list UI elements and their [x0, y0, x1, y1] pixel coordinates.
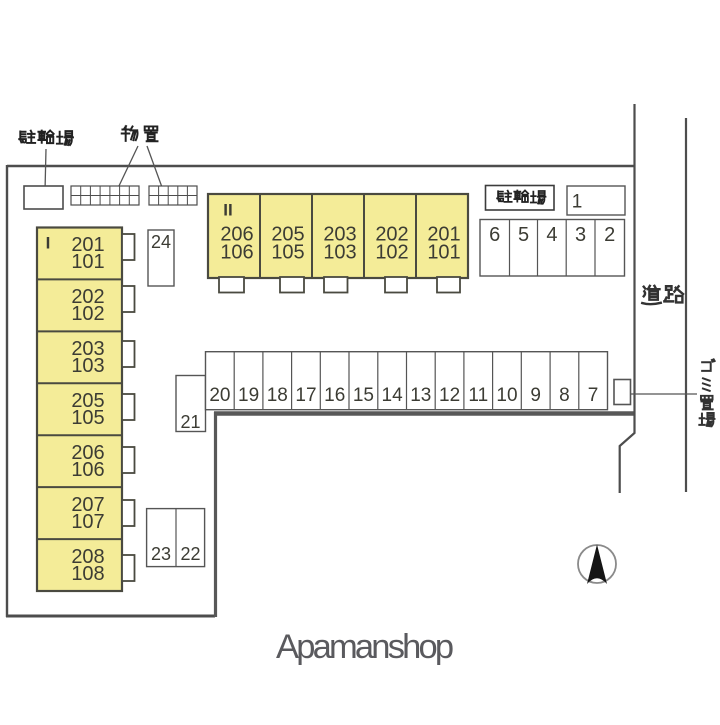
- svg-text:23: 23: [151, 544, 171, 564]
- svg-text:4: 4: [546, 224, 557, 246]
- svg-text:10: 10: [496, 385, 517, 406]
- svg-text:8: 8: [559, 385, 570, 406]
- svg-text:17: 17: [295, 385, 316, 406]
- svg-text:1: 1: [572, 192, 583, 213]
- svg-text:14: 14: [382, 385, 404, 406]
- svg-text:12: 12: [439, 385, 460, 406]
- svg-text:24: 24: [151, 232, 171, 252]
- svg-text:103: 103: [71, 355, 104, 377]
- svg-text:106: 106: [220, 242, 253, 264]
- svg-text:16: 16: [324, 385, 345, 406]
- svg-text:3: 3: [575, 224, 586, 246]
- svg-text:107: 107: [71, 511, 104, 533]
- svg-text:11: 11: [468, 385, 488, 406]
- svg-text:7: 7: [588, 385, 599, 406]
- svg-text:13: 13: [410, 385, 431, 406]
- svg-text:101: 101: [427, 242, 460, 264]
- svg-text:Apamanshop: Apamanshop: [276, 628, 453, 666]
- svg-text:102: 102: [71, 303, 104, 325]
- svg-text:101: 101: [71, 251, 104, 273]
- svg-text:105: 105: [271, 242, 304, 264]
- svg-text:22: 22: [180, 544, 200, 564]
- svg-text:20: 20: [209, 385, 230, 406]
- svg-text:2: 2: [604, 224, 615, 246]
- svg-text:103: 103: [323, 242, 356, 264]
- svg-text:9: 9: [530, 385, 541, 406]
- svg-text:108: 108: [71, 563, 104, 585]
- svg-text:102: 102: [375, 242, 408, 264]
- svg-text:21: 21: [180, 412, 200, 432]
- svg-text:19: 19: [238, 385, 259, 406]
- svg-text:II: II: [223, 201, 232, 220]
- svg-text:106: 106: [71, 459, 104, 481]
- svg-text:I: I: [46, 234, 51, 253]
- svg-text:5: 5: [518, 224, 529, 246]
- svg-text:105: 105: [71, 407, 104, 429]
- svg-text:6: 6: [489, 224, 500, 246]
- svg-text:15: 15: [353, 385, 374, 406]
- svg-text:18: 18: [267, 385, 288, 406]
